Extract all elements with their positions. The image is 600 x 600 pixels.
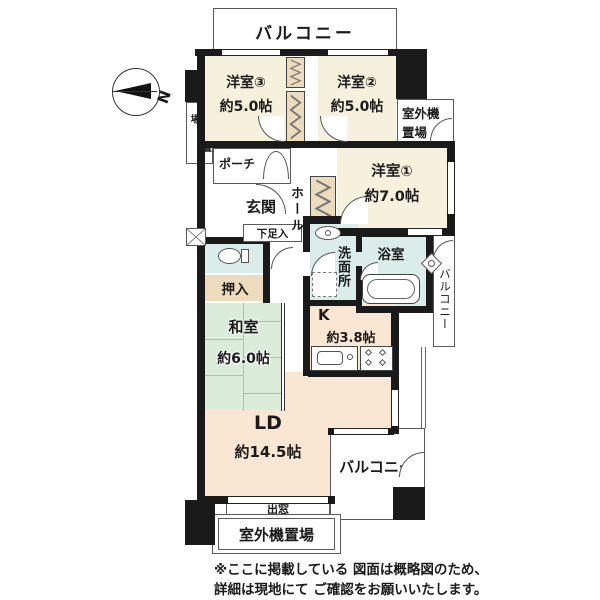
window	[328, 49, 388, 56]
wc-door-arc	[271, 247, 293, 269]
balcony-connector-line-outer	[421, 347, 422, 428]
window	[447, 162, 455, 214]
room2-size-label: 約5.0帖	[318, 96, 396, 116]
tatami-line	[205, 375, 243, 376]
floor-plan: バルコニー 室外機置場 室外機 置場 ポーチ バルコニー バルコニー 出窓 室外…	[0, 0, 600, 600]
pillar	[185, 70, 205, 102]
wall	[303, 300, 360, 306]
room1-size-label: 約7.0帖	[337, 185, 447, 206]
wall	[203, 141, 455, 148]
tatami-line	[243, 393, 282, 394]
kitchen-name-label: K	[318, 306, 330, 324]
wall	[197, 49, 205, 505]
room3-name-label: 洋室③	[203, 72, 289, 92]
compass-baseline	[113, 91, 157, 92]
porch-label: ポーチ	[219, 155, 255, 172]
window	[391, 390, 399, 426]
kitchen-size-label: 約3.8帖	[308, 327, 394, 346]
balcony-connector-line-inner	[425, 347, 426, 428]
compass: N	[108, 64, 180, 120]
outdoor-unit-bottom-label: 室外機置場	[239, 524, 314, 545]
slop-sink-drain-icon	[428, 260, 435, 267]
living-size-label: 約14.5帖	[208, 441, 328, 462]
pillar	[185, 500, 215, 545]
living-name-label: LD	[212, 412, 324, 434]
room1-name-label: 洋室①	[337, 160, 447, 181]
window	[408, 228, 442, 236]
hanger-zigzag-icon	[287, 58, 304, 87]
oshiire: 押入	[205, 275, 265, 301]
toilet-icon	[218, 248, 241, 264]
tatami-line	[205, 339, 243, 340]
washbasin-drain-icon	[325, 230, 331, 236]
hall-label: ホール	[286, 186, 305, 234]
oshiire-label: 押入	[222, 278, 249, 298]
washitsu-name-label: 和室	[205, 316, 282, 337]
room2-name-label: 洋室②	[318, 72, 396, 92]
pillar	[396, 55, 427, 99]
toilet-tank-icon	[241, 249, 249, 263]
washroom-label: 洗面所	[333, 246, 352, 288]
outdoor-unit-bottom: 室外機置場	[218, 518, 335, 550]
meter-box-x-icon	[187, 229, 205, 245]
stove-icon	[360, 346, 393, 371]
footnote-line-1: ※ここに掲載している 図面は概略図のため、	[214, 558, 488, 578]
pillar	[393, 487, 425, 520]
footnote-line-2: 詳細は現地にて ご確認をお願いいたします。	[214, 578, 487, 598]
bath-label: 浴室	[360, 243, 422, 263]
window	[222, 49, 280, 56]
kitchen-faucet-icon	[347, 354, 353, 360]
meter-box	[186, 228, 206, 246]
bathtub-inner-icon	[367, 279, 415, 299]
washitsu-size-label: 約6.0帖	[205, 348, 282, 368]
window	[228, 496, 328, 504]
entrance-label: 玄関	[246, 196, 276, 217]
balcony-top-label: バルコニー	[213, 19, 397, 44]
room3-size-label: 約5.0帖	[203, 96, 289, 116]
kitchen-sink-bowl-icon	[317, 351, 343, 365]
hanger-zigzag-icon	[287, 92, 304, 142]
shoe-box-label: 下足入	[257, 226, 289, 241]
window	[334, 428, 388, 435]
wall	[308, 370, 394, 377]
balcony-right-label: バルコニー	[437, 268, 453, 331]
wall	[303, 276, 310, 376]
